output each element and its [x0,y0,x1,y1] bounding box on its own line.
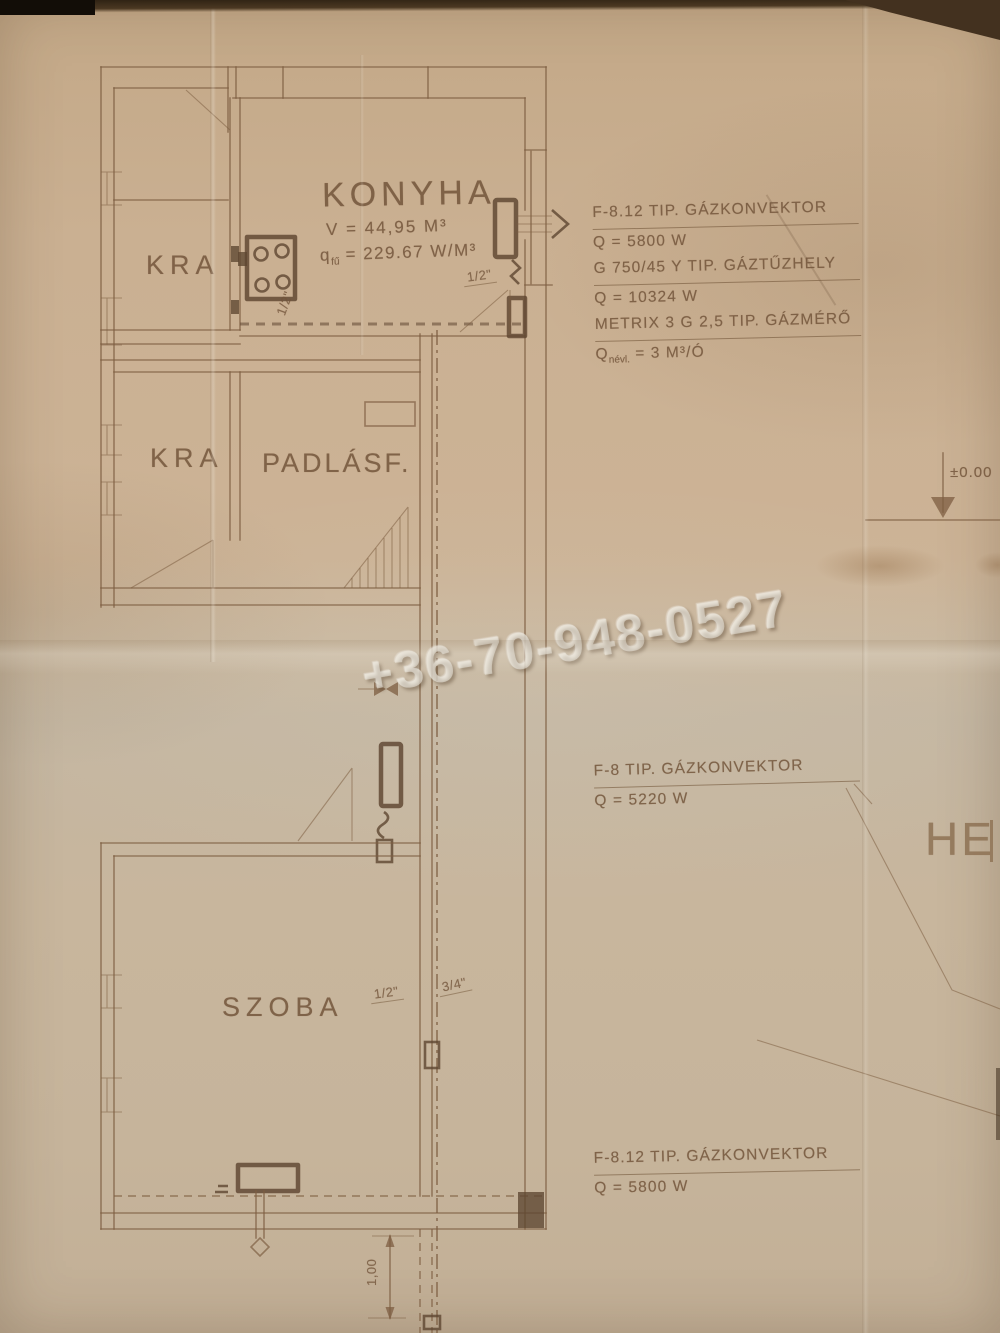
equipment-power: Q = 5800 W [594,1170,860,1202]
konyha-volume-value: V = 44,95 M³ [326,216,448,240]
scanned-floor-plan-document: KONYHA V = 44,95 M³ qfű = 229.67 W/M³ KR… [0,0,1000,1333]
annotation-hall-equipment: F-8 TIP. GÁZKONVEKTOR Q = 5220 W [593,752,860,815]
gas-meter-icon [509,298,525,336]
partial-letter-stroke [990,820,993,862]
upper-rooms-walls [101,98,525,344]
room-label-szoba: SZOBA [222,992,344,1023]
equipment-flow: Qnévl. = 3 M³/Ó [595,336,862,374]
kitchen-door-swing [460,290,510,334]
pipe-end-diamond-icon [251,1238,269,1256]
dimension-value: 1,00 [364,1255,380,1290]
corridor-walls [420,330,437,1333]
flue-arrow-icon [552,210,568,238]
middle-rooms-walls [101,360,420,605]
door-swing-left [131,540,213,588]
room-label-konyha: KONYHA [322,173,496,215]
annotation-kitchen-equipment: F-8.12 TIP. GÁZKONVEKTOR Q = 5800 W G 75… [592,194,862,374]
szoba-convector-icon [215,1165,298,1256]
elevation-value: ±0.00 [950,464,992,481]
annotation-szoba-equipment: F-8.12 TIP. GÁZKONVEKTOR Q = 5800 W [593,1140,860,1202]
room-label-kamra-top: KRA [146,250,220,281]
room-label-kamra-mid: KRA [150,443,224,474]
partial-title-text: HE [925,812,995,866]
room-label-padlasfeljaro: PADLÁSF. [262,448,412,479]
left-wall-windows [101,172,122,1112]
hall-gas-convector-icon [377,744,401,862]
pipe-zigzag-icon [511,260,520,284]
attic-stairs-icon [344,507,408,588]
